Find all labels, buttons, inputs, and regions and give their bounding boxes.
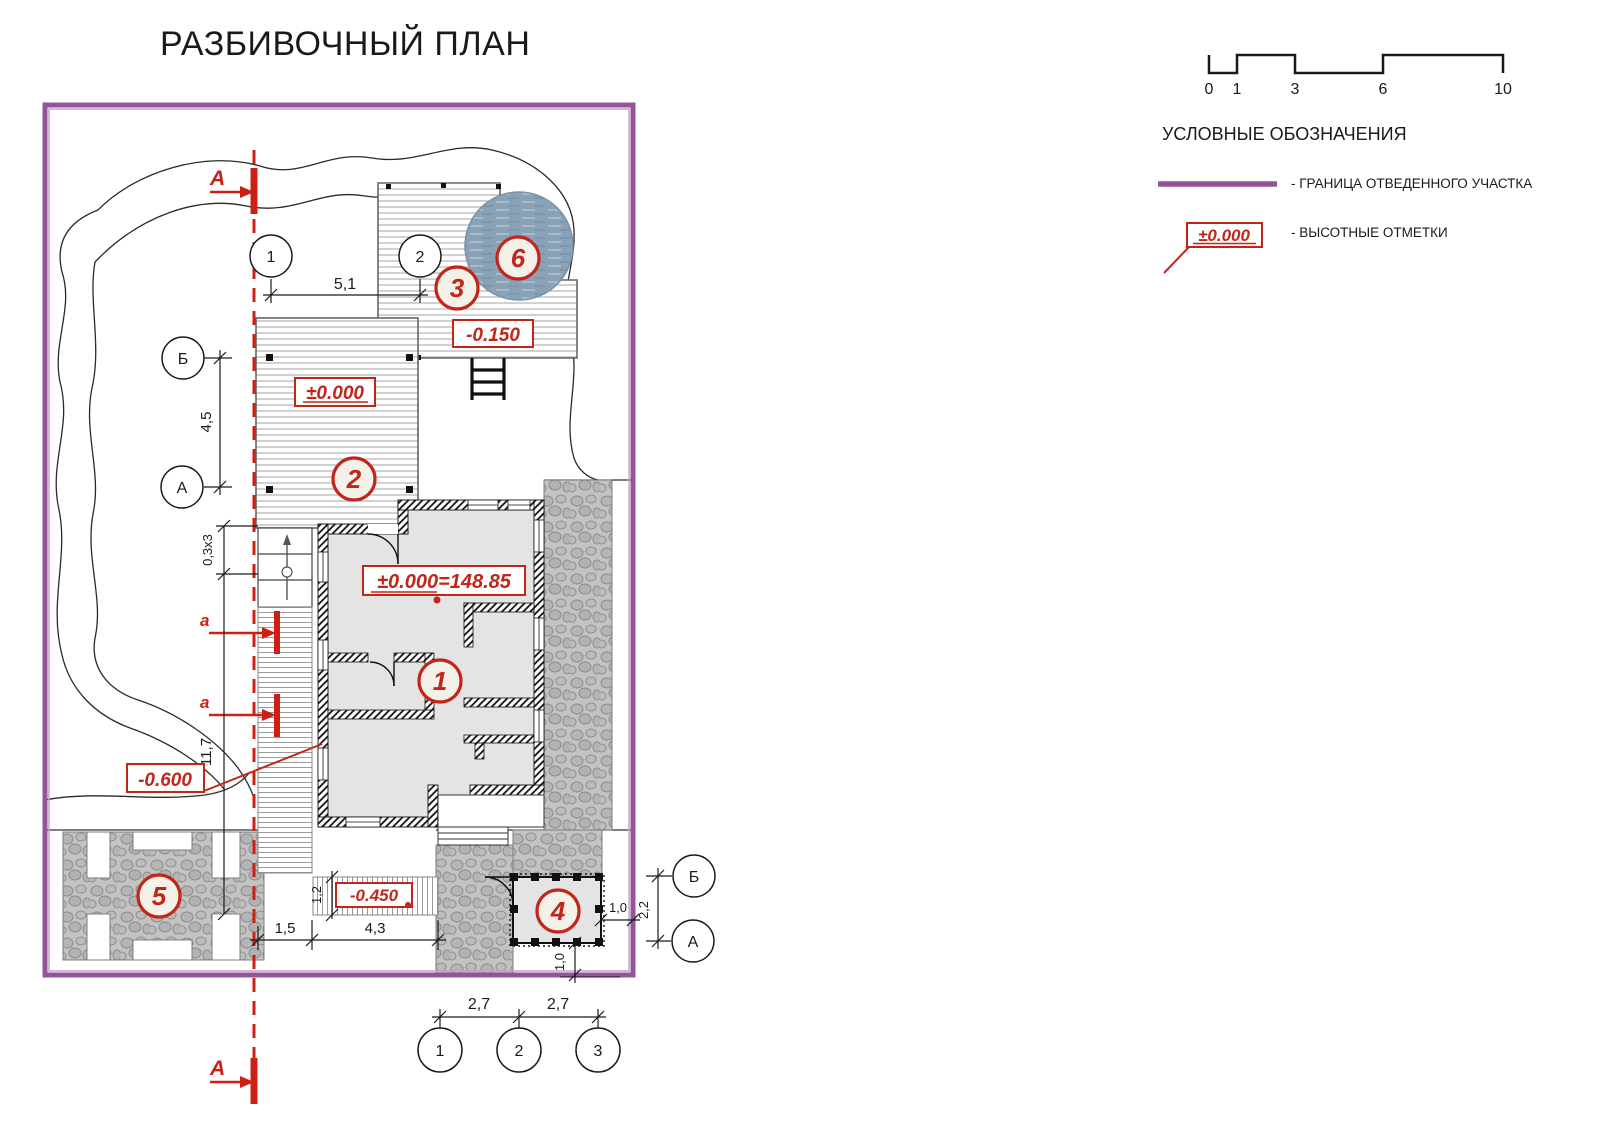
scale-bar bbox=[1209, 55, 1503, 73]
elevation-deck: ±0.000 bbox=[295, 378, 375, 406]
porch-steps bbox=[438, 827, 508, 845]
stone-strip-east bbox=[544, 480, 612, 830]
marker-outbuilding: 4 bbox=[550, 896, 566, 926]
local-section-label-1: а bbox=[200, 611, 209, 630]
axis-right-b: Б bbox=[689, 869, 700, 886]
stone-patch-outbuilding bbox=[513, 830, 602, 877]
section-label-bottom: А bbox=[209, 1057, 225, 1080]
drawing-sheet: РАЗБИВОЧНЫЙ ПЛАН 0 1 3 6 10 УСЛОВНЫЕ ОБО… bbox=[0, 0, 1600, 1136]
marker-upper-deck: 3 bbox=[450, 273, 465, 303]
legend-elevation-sample: ±0.000 bbox=[1198, 226, 1250, 245]
scale-tick-1: 1 bbox=[1233, 81, 1242, 98]
scale-bar-shape bbox=[1209, 55, 1503, 73]
elevation-path-value: -0.450 bbox=[350, 886, 399, 905]
dim-outbuilding-right: 1,0 bbox=[609, 900, 627, 915]
marker-parking: 5 bbox=[152, 881, 167, 911]
deck-steps bbox=[258, 528, 312, 607]
marker-pool: 6 bbox=[511, 243, 526, 273]
axis-left-a: А bbox=[177, 480, 188, 497]
scale-tick-6: 6 bbox=[1379, 81, 1388, 98]
main-deck bbox=[256, 318, 418, 528]
scale-tick-0: 0 bbox=[1205, 81, 1214, 98]
elevation-deck-value: ±0.000 bbox=[306, 383, 364, 404]
axis-left-b: Б bbox=[178, 351, 189, 368]
page-title: РАЗБИВОЧНЫЙ ПЛАН bbox=[160, 25, 530, 63]
scale-tick-3: 3 bbox=[1291, 81, 1300, 98]
elevation-upper-deck-value: -0.150 bbox=[466, 325, 520, 346]
axis-top-1: 1 bbox=[267, 249, 276, 266]
dim-walk-offset: 1,5 bbox=[275, 920, 296, 937]
axis-top-2: 2 bbox=[416, 249, 425, 266]
dim-bottom-23: 2,7 bbox=[547, 996, 569, 1013]
legend-title: УСЛОВНЫЕ ОБОЗНАЧЕНИЯ bbox=[1162, 124, 1407, 144]
boardwalk bbox=[258, 607, 312, 873]
legend-elevation-label: - ВЫСОТНЫЕ ОТМЕТКИ bbox=[1291, 225, 1448, 240]
dim-path-length: 4,3 bbox=[365, 920, 386, 937]
section-label-top: А bbox=[209, 167, 225, 190]
scale-bar-labels: 0 1 3 6 10 bbox=[1205, 81, 1512, 98]
axis-bottom-1: 1 bbox=[436, 1043, 445, 1060]
dim-steps: 0,3x3 bbox=[200, 534, 215, 566]
site-plan-svg: РАЗБИВОЧНЫЙ ПЛАН 0 1 3 6 10 УСЛОВНЫЕ ОБО… bbox=[0, 0, 1600, 1136]
deck-ladder bbox=[472, 358, 504, 400]
scale-tick-10: 10 bbox=[1494, 81, 1512, 98]
elevation-upper-deck: -0.150 bbox=[453, 320, 533, 347]
local-section-label-2: а bbox=[200, 693, 209, 712]
dim-top: 5,1 bbox=[334, 276, 356, 293]
elevation-house-value: ±0.000=148.85 bbox=[377, 571, 512, 593]
elevation-path: -0.450 bbox=[336, 883, 412, 908]
legend-elevation-leader bbox=[1164, 247, 1189, 273]
dim-bottom-12: 2,7 bbox=[468, 996, 490, 1013]
stone-patch-south bbox=[436, 845, 513, 975]
legend-boundary-label: - ГРАНИЦА ОТВЕДЕННОГО УЧАСТКА bbox=[1291, 176, 1532, 191]
marker-deck: 2 bbox=[346, 464, 362, 494]
axis-bottom-3: 3 bbox=[594, 1043, 603, 1060]
dim-outbuilding-bottom: 1,0 bbox=[552, 953, 567, 971]
dim-path-width: 1,2 bbox=[309, 886, 324, 904]
legend: УСЛОВНЫЕ ОБОЗНАЧЕНИЯ - ГРАНИЦА ОТВЕДЕННО… bbox=[1158, 124, 1532, 273]
elevation-ground-value: -0.600 bbox=[138, 770, 192, 791]
axis-right-a: А bbox=[688, 934, 699, 951]
dim-walkway: 11,7 bbox=[198, 738, 215, 766]
dim-axis-right: 2,2 bbox=[636, 901, 651, 919]
marker-house: 1 bbox=[433, 666, 447, 696]
axis-bottom-2: 2 bbox=[515, 1043, 524, 1060]
dim-left: 4,5 bbox=[198, 412, 215, 433]
